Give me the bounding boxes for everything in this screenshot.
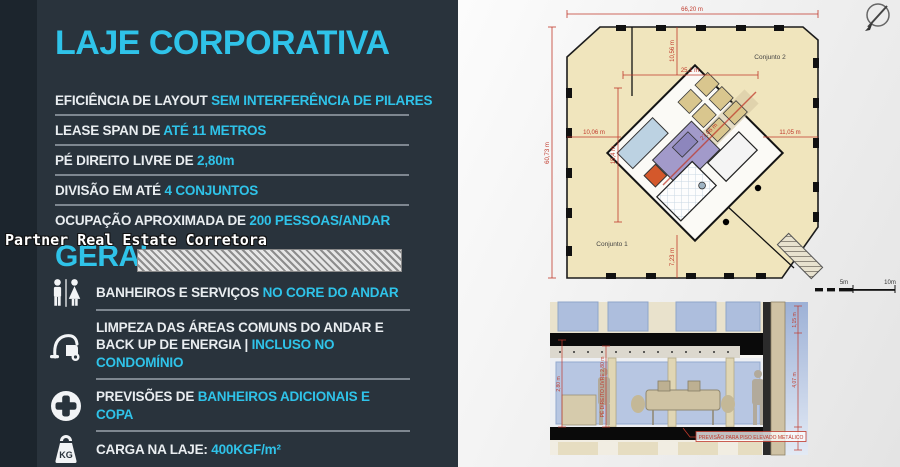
hatch-decoration [137,249,402,272]
slide: LAJE CORPORATIVA EFICIÊNCIA DE LAYOUT SE… [0,0,900,467]
spec-row-lease-span: LEASE SPAN DE ATÉ 11 METROS [55,116,409,146]
dim-bottom-offset: 7,23 m [670,248,676,266]
dim-right-mid: 4,07 m [792,372,798,387]
spec-highlight: 200 PESSOAS/ANDAR [249,213,390,228]
feature-prefix: BANHEIROS E SERVIÇOS [96,285,263,300]
vacuum-icon [46,327,86,363]
dim-total-height: 60,73 m [545,142,551,164]
feature-prefix: PREVISÕES DE [96,389,198,404]
plan-dot [755,185,761,191]
feature-prefix: CARGA NA LAJE: [96,442,211,457]
weight-icon: KG [46,432,86,466]
feature-row-restrooms: BANHEIROS E SERVIÇOS NO CORE DO ANDAR [46,276,410,311]
scale-bar: 5m 10m [815,280,896,293]
spec-row-occupancy: OCUPAÇÃO APROXIMADA DE 200 PESSOAS/ANDAR [55,206,409,234]
feature-row-cleaning: LIMPEZA DAS ÁREAS COMUNS DO ANDAR E BACK… [46,311,410,381]
spec-highlight: 4 CONJUNTOS [165,183,259,198]
dim-top-offset: 10,56 m [670,40,676,62]
feature-text: PREVISÕES DE BANHEIROS ADICIONAIS E COPA [96,380,410,432]
conjunto1-label: Conjunto 1 [596,241,628,248]
dim-long-label: PÉ DIREITO LIVRE 2,80 m [599,357,606,418]
feature-text: LIMPEZA DAS ÁREAS COMUNS DO ANDAR E BACK… [96,311,410,381]
page-title: LAJE CORPORATIVA [55,24,390,63]
spec-list: EFICIÊNCIA DE LAYOUT SEM INTERFERÊNCIA D… [55,86,409,234]
feature-list: BANHEIROS E SERVIÇOS NO CORE DO ANDAR LI… [46,276,410,466]
plus-icon [46,389,86,423]
spec-highlight: ATÉ 11 METROS [163,123,266,138]
spec-row-layout: EFICIÊNCIA DE LAYOUT SEM INTERFERÊNCIA D… [55,86,409,116]
floor-plan: 66,20 m 60,73 m 25,1 m 10,56 m 10,06 m 1… [545,4,896,293]
dim-inner-width: 25,1 m [681,68,699,74]
feature-highlight: NO CORE DO ANDAR [263,285,399,300]
restroom-icon [46,277,86,309]
upper-window-band [550,302,785,333]
spec-row-ceiling-height: PÉ DIREITO LIVRE DE 2,80m [55,146,409,176]
spec-prefix: PÉ DIREITO LIVRE DE [55,153,197,168]
kg-label: KG [59,450,73,460]
spec-prefix: LEASE SPAN DE [55,123,163,138]
architectural-drawings: 66,20 m 60,73 m 25,1 m 10,56 m 10,06 m 1… [458,0,900,467]
drawings-panel: 66,20 m 60,73 m 25,1 m 10,56 m 10,06 m 1… [458,0,900,467]
conjunto2-label: Conjunto 2 [754,54,786,61]
dim-clear-height: 2,80 m [556,376,562,391]
scale-5m-label: 5m [840,280,848,286]
spec-prefix: DIVISÃO EM ATÉ [55,183,165,198]
feature-text: CARGA NA LAJE: 400KGF/m² [96,433,410,466]
upper-slab [550,333,772,346]
spec-prefix: OCUPAÇÃO APROXIMADA DE [55,213,249,228]
info-panel: LAJE CORPORATIVA EFICIÊNCIA DE LAYOUT SE… [0,0,458,467]
dim-total-width: 66,20 m [681,7,703,13]
note-text: PREVISÃO PARA PISO ELEVADO METÁLICO [699,434,804,441]
spec-row-division: DIVISÃO EM ATÉ 4 CONJUNTOS [55,176,409,206]
feature-row-extra-restrooms: PREVISÕES DE BANHEIROS ADICIONAIS E COPA [46,380,410,432]
plan-dot [723,219,729,225]
spec-prefix: EFICIÊNCIA DE LAYOUT [55,93,211,108]
dim-left-offset: 10,06 m [583,130,605,136]
dim-right-offset: 11,05 m [779,130,800,136]
spec-highlight: 2,80m [197,153,234,168]
watermark: Partner Real Estate Corretora [5,231,267,249]
interior [550,358,780,427]
feature-text: BANHEIROS E SERVIÇOS NO CORE DO ANDAR [96,276,410,311]
north-compass-icon [865,4,889,31]
section-drawing: 2,80 m PÉ DIREITO LIVRE 2,80 m 1,15 m 4,… [550,302,808,455]
feature-prefix: LIMPEZA DAS ÁREAS COMUNS DO ANDAR E BACK… [96,320,384,353]
spec-highlight: SEM INTERFERÊNCIA DE PILARES [211,93,432,108]
feature-highlight: 400KGF/m² [211,442,280,457]
dim-right-top: 1,15 m [792,312,798,327]
feature-row-floor-load: KG CARGA NA LAJE: 400KGF/m² [46,432,410,466]
dim-core-height: 15,4 m [611,146,617,164]
scale-10m-label: 10m [884,280,896,286]
lower-band [550,440,785,455]
